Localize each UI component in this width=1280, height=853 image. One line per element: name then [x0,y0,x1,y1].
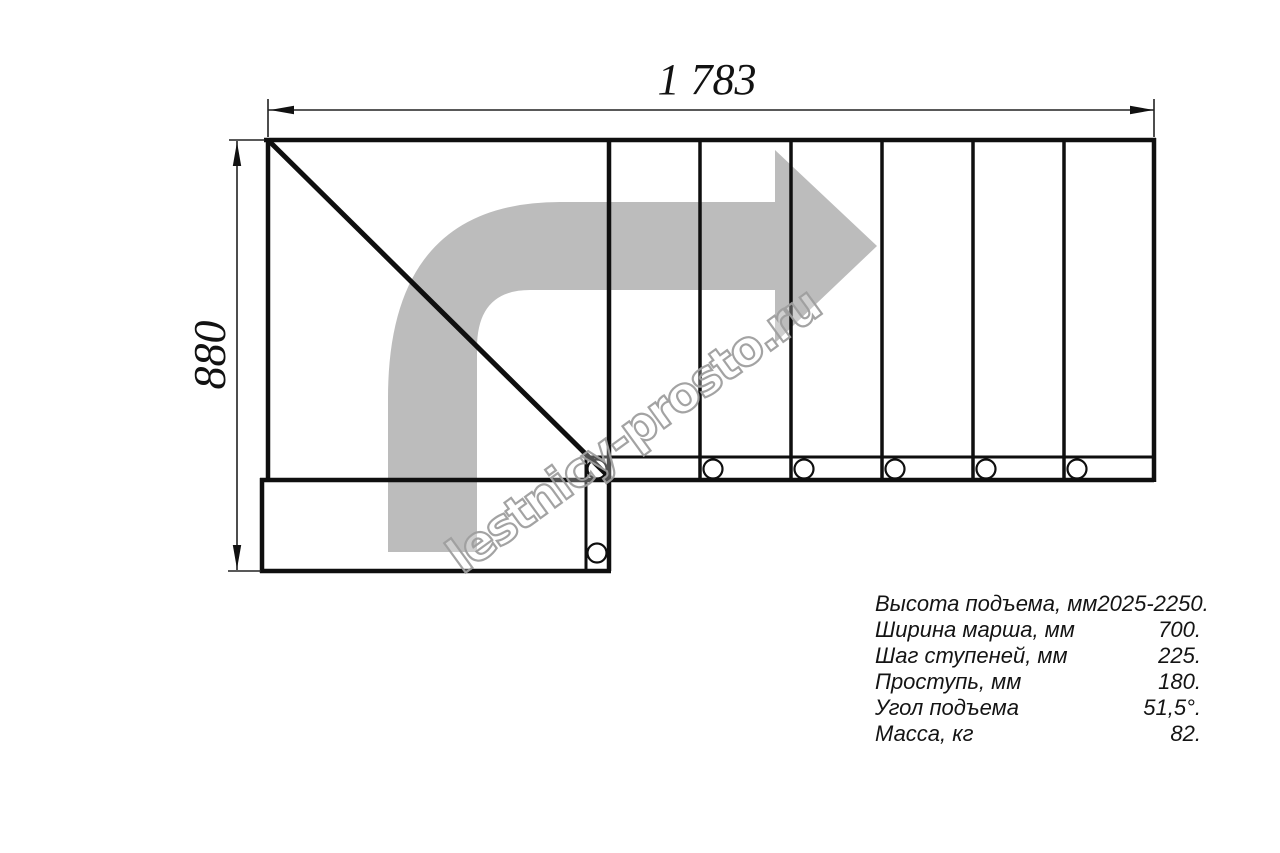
direction-arrow-shape [388,150,877,552]
spec-label: Угол подъема [875,695,1019,721]
spec-row: Высота подъема, мм 2025-2250. [875,591,1201,617]
dim-arrow-left-icon [270,106,294,114]
width-dimension-label: 1 783 [658,55,757,104]
spec-row: Ширина марша, мм 700. [875,617,1201,643]
baluster-posts [588,460,1087,563]
spec-label: Высота подъема, мм [875,591,1097,617]
spec-value: 180. [1158,669,1201,695]
spec-row: Проступь, мм 180. [875,669,1201,695]
spec-label: Проступь, мм [875,669,1021,695]
dim-arrow-up-icon [233,142,241,166]
spec-row: Масса, кг 82. [875,721,1201,747]
spec-row: Угол подъема 51,5°. [875,695,1201,721]
spec-label: Ширина марша, мм [875,617,1075,643]
spec-row: Шаг ступеней, мм 225. [875,643,1201,669]
spec-value: 700. [1158,617,1201,643]
direction-arrow [388,150,877,552]
dim-arrow-down-icon [233,545,241,569]
spec-value: 51,5°. [1143,695,1201,721]
baluster-circle [704,460,723,479]
height-dimension-label: 880 [184,321,235,390]
spec-value: 82. [1170,721,1201,747]
spec-label: Шаг ступеней, мм [875,643,1068,669]
specs-table: Высота подъема, мм 2025-2250. Ширина мар… [875,591,1201,747]
stair-plan-drawing: 1 783 880 lestnicy-prosto.ru Высота подъ… [0,0,1280,853]
spec-value: 2025-2250. [1097,591,1208,617]
baluster-circle [1068,460,1087,479]
spec-label: Масса, кг [875,721,974,747]
baluster-circle [588,544,607,563]
baluster-circle [795,460,814,479]
baluster-circle [886,460,905,479]
spec-value: 225. [1158,643,1201,669]
dim-arrow-right-icon [1130,106,1154,114]
dimension-width [268,99,1154,137]
baluster-circle [977,460,996,479]
